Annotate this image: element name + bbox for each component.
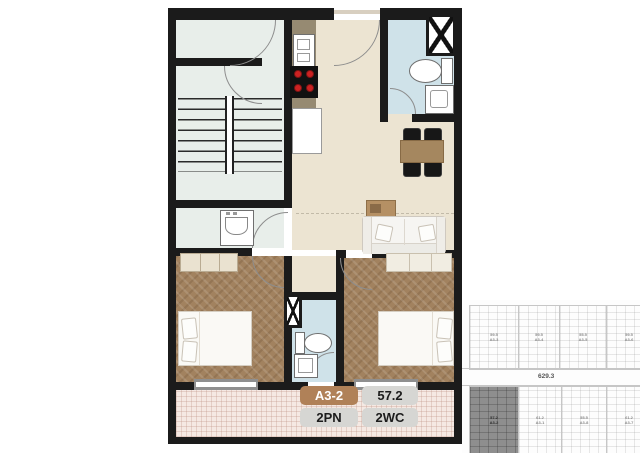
unit-code-badge: A3-2 — [300, 386, 358, 405]
wardrobe — [386, 253, 452, 272]
dining-chair — [424, 161, 442, 177]
shaft-2 — [284, 294, 302, 328]
minimap-total-area-label: 629.3 — [538, 373, 554, 380]
wall-stair-bottom — [168, 200, 292, 208]
sofa-pillow — [418, 224, 437, 243]
bed-pillow — [181, 340, 198, 362]
burner — [294, 84, 302, 92]
minimap-unit: 59.5A3-3 — [469, 305, 519, 370]
unit-bathrooms-label: 2WC — [376, 410, 405, 425]
kitchen-sink — [293, 34, 315, 68]
minimap-unit-code: A3-7 — [625, 420, 634, 425]
stair-stringer — [225, 96, 234, 174]
bed-pillow — [436, 340, 453, 362]
burner — [306, 84, 314, 92]
unit-code-label: A3-2 — [315, 388, 343, 403]
minimap-unit-code: A3-1 — [536, 420, 545, 425]
washing-machine — [220, 210, 254, 246]
minimap-unit-code: A3-8 — [580, 420, 589, 425]
mini-floor-plate-map: 59.5A3-3 59.5A3-4 55.5A3-5 59.5A3-6 629.… — [462, 300, 640, 453]
wall-bedroom2-top-a — [336, 250, 346, 258]
unit-area-badge: 57.2 — [362, 386, 418, 405]
minimap-unit: 55.5A3-8 — [561, 386, 607, 453]
shaft-1 — [426, 14, 456, 56]
minimap-corridor: 629.3 — [462, 368, 640, 386]
toilet-bowl — [409, 59, 442, 83]
wall-bottom-a — [168, 382, 194, 390]
wall-stair-landing — [176, 58, 262, 66]
minimap-unit-code: A3-2 — [490, 420, 499, 425]
unit-area-label: 57.2 — [377, 388, 402, 403]
wash-basin — [294, 354, 318, 378]
wall-balcony-bottom — [168, 437, 462, 444]
entry-door-frame — [334, 10, 380, 14]
minimap-bottom-row: 57.2A3-2 61.2A3-1 55.5A3-8 61.2A3-7 — [470, 386, 640, 453]
wall-bath1-bottom — [412, 114, 454, 122]
kitchen-cabinet — [292, 108, 322, 154]
bed-pillow — [181, 317, 198, 339]
unit-bathrooms-badge: 2WC — [362, 408, 418, 427]
vanity-sink — [425, 85, 454, 114]
burner — [306, 70, 314, 78]
burner — [294, 70, 302, 78]
wall-bedroom2-left — [336, 258, 344, 382]
floor-plan-page: A3-2 57.2 2PN 2WC 59.5A3-3 59.5A3-4 55.5… — [0, 0, 640, 453]
wall-bath1-side — [380, 8, 388, 122]
sofa-pillow — [375, 224, 394, 243]
shaft-x-icon — [429, 17, 453, 53]
dining-chair — [403, 161, 421, 177]
minimap-top-row: 59.5A3-3 59.5A3-4 55.5A3-5 59.5A3-6 — [470, 305, 640, 368]
wall-bottom-d — [418, 382, 454, 390]
double-bed — [378, 311, 454, 366]
minimap-unit-code: A3-3 — [490, 337, 499, 342]
wall-stair-divider — [284, 8, 292, 208]
bed-pillow — [436, 317, 453, 339]
cooktop — [290, 66, 318, 98]
unit-bedrooms-label: 2PN — [316, 410, 341, 425]
wall-top-left — [168, 8, 334, 20]
minimap-unit: 59.5A3-6 — [606, 305, 640, 370]
unit-bedrooms-badge: 2PN — [300, 408, 358, 427]
minimap-unit: 55.5A3-5 — [559, 305, 607, 370]
wall-right — [454, 8, 462, 444]
wall-left — [168, 8, 176, 444]
minimap-unit-highlighted: 57.2A3-2 — [469, 386, 519, 453]
minimap-unit: 61.2A3-1 — [518, 386, 562, 453]
toilet-tank — [441, 58, 453, 84]
minimap-unit-code: A3-6 — [625, 337, 634, 342]
dining-table — [400, 140, 444, 163]
shaft-x-icon — [287, 297, 299, 325]
unit-info-card: A3-2 57.2 2PN 2WC — [296, 382, 422, 432]
toilet-bowl — [304, 333, 332, 353]
minimap-unit: 59.5A3-4 — [518, 305, 560, 370]
double-bed — [178, 311, 252, 366]
sofa — [362, 216, 446, 254]
wardrobe — [180, 253, 238, 272]
window — [194, 379, 258, 390]
minimap-unit-code: A3-5 — [579, 337, 588, 342]
minimap-unit: 61.2A3-7 — [606, 386, 640, 453]
minimap-unit-code: A3-4 — [535, 337, 544, 342]
